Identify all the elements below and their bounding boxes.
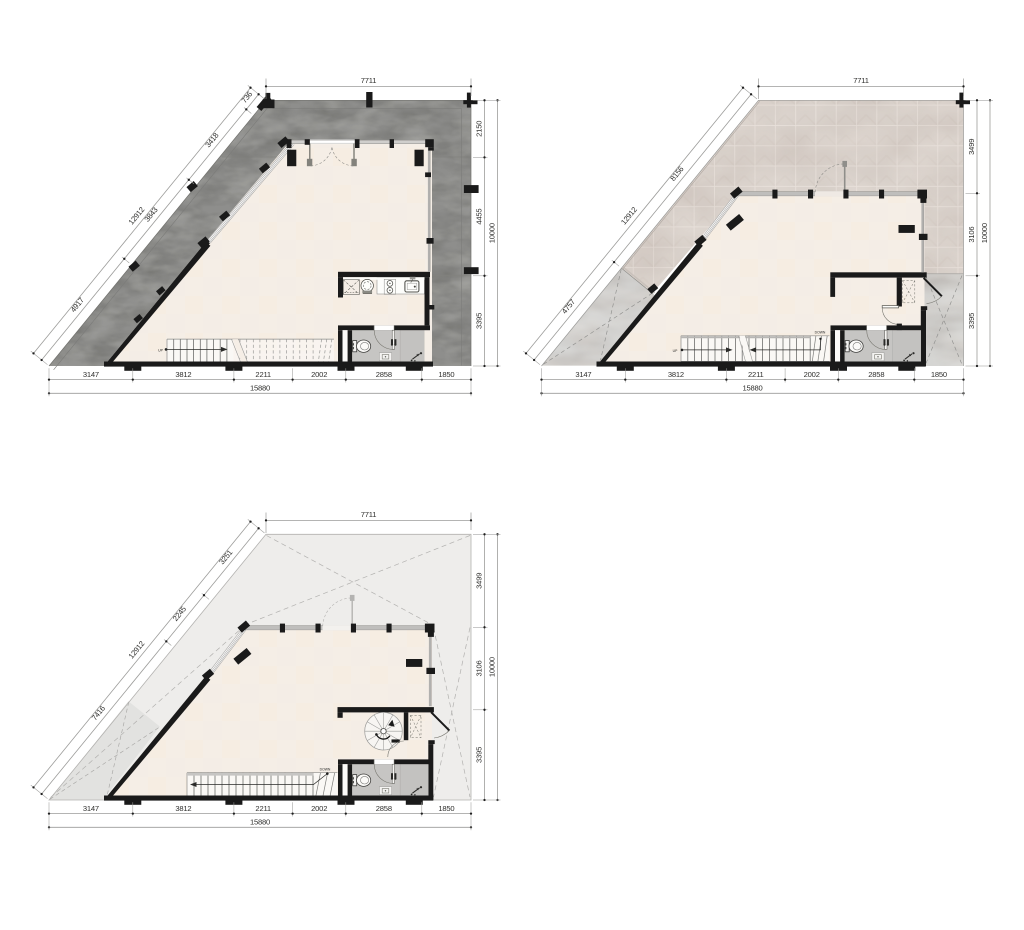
- svg-text:7711: 7711: [853, 76, 869, 85]
- svg-text:2211: 2211: [748, 370, 764, 379]
- svg-text:10000: 10000: [487, 657, 496, 677]
- svg-text:2858: 2858: [376, 804, 392, 813]
- svg-text:2858: 2858: [868, 370, 884, 379]
- svg-text:UP: UP: [158, 348, 163, 352]
- svg-text:3395: 3395: [474, 313, 483, 329]
- svg-text:DOWN: DOWN: [815, 331, 826, 335]
- svg-text:DOWN: DOWN: [320, 768, 331, 772]
- svg-text:2150: 2150: [474, 121, 483, 137]
- svg-text:10000: 10000: [980, 223, 989, 243]
- svg-text:3106: 3106: [474, 660, 483, 676]
- svg-text:3812: 3812: [175, 804, 191, 813]
- svg-text:1850: 1850: [438, 370, 454, 379]
- svg-text:3147: 3147: [83, 804, 99, 813]
- svg-text:10000: 10000: [487, 223, 496, 243]
- svg-text:3395: 3395: [967, 313, 976, 329]
- svg-text:3147: 3147: [575, 370, 591, 379]
- svg-text:7711: 7711: [361, 76, 377, 85]
- svg-text:15880: 15880: [742, 384, 762, 393]
- svg-text:15880: 15880: [250, 818, 270, 827]
- svg-text:2002: 2002: [804, 370, 820, 379]
- svg-text:3812: 3812: [668, 370, 684, 379]
- svg-text:2002: 2002: [311, 804, 327, 813]
- svg-text:3812: 3812: [175, 370, 191, 379]
- svg-text:2002: 2002: [311, 370, 327, 379]
- svg-text:1850: 1850: [438, 804, 454, 813]
- svg-text:7711: 7711: [361, 510, 377, 519]
- svg-text:UP: UP: [673, 349, 678, 353]
- svg-text:3499: 3499: [967, 139, 976, 155]
- svg-text:2858: 2858: [376, 370, 392, 379]
- svg-text:15880: 15880: [250, 384, 270, 393]
- svg-text:2211: 2211: [255, 804, 271, 813]
- svg-text:1850: 1850: [931, 370, 947, 379]
- svg-text:3106: 3106: [967, 227, 976, 243]
- svg-text:4455: 4455: [474, 209, 483, 225]
- svg-text:2211: 2211: [255, 370, 271, 379]
- svg-text:3499: 3499: [474, 573, 483, 589]
- svg-text:3395: 3395: [474, 747, 483, 763]
- svg-text:3147: 3147: [83, 370, 99, 379]
